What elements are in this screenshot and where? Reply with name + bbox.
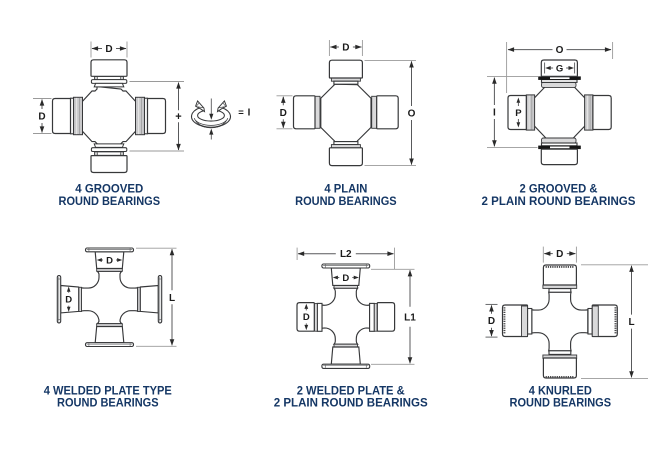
svg-text:2 PLAIN ROUND BEARINGS: 2 PLAIN ROUND BEARINGS <box>482 194 636 208</box>
svg-text:O: O <box>556 45 564 56</box>
svg-text:D: D <box>342 273 349 284</box>
svg-text:I: I <box>248 108 251 119</box>
svg-text:O: O <box>408 109 416 120</box>
svg-text:L: L <box>628 317 634 328</box>
svg-text:D: D <box>65 295 72 306</box>
svg-text:=: = <box>238 107 244 118</box>
svg-text:+: + <box>175 111 181 123</box>
svg-text:ROUND BEARINGS: ROUND BEARINGS <box>57 396 159 410</box>
svg-text:L2: L2 <box>340 249 352 260</box>
svg-text:P: P <box>515 108 522 119</box>
svg-text:D: D <box>105 44 112 55</box>
svg-text:ROUND BEARINGS: ROUND BEARINGS <box>295 194 397 208</box>
svg-text:D: D <box>38 112 45 123</box>
svg-text:2 PLAIN ROUND BEARINGS: 2 PLAIN ROUND BEARINGS <box>274 396 428 410</box>
svg-text:D: D <box>488 316 495 327</box>
svg-text:D: D <box>303 312 310 323</box>
svg-text:ROUND BEARINGS: ROUND BEARINGS <box>59 194 161 208</box>
svg-text:D: D <box>556 249 563 260</box>
svg-text:ROUND BEARINGS: ROUND BEARINGS <box>510 396 612 410</box>
svg-text:L1: L1 <box>404 312 416 323</box>
svg-text:D: D <box>106 255 113 266</box>
svg-text:L: L <box>169 293 175 304</box>
svg-text:I: I <box>493 108 496 119</box>
svg-text:G: G <box>556 63 563 74</box>
svg-text:D: D <box>342 43 349 54</box>
svg-text:D: D <box>280 108 287 119</box>
